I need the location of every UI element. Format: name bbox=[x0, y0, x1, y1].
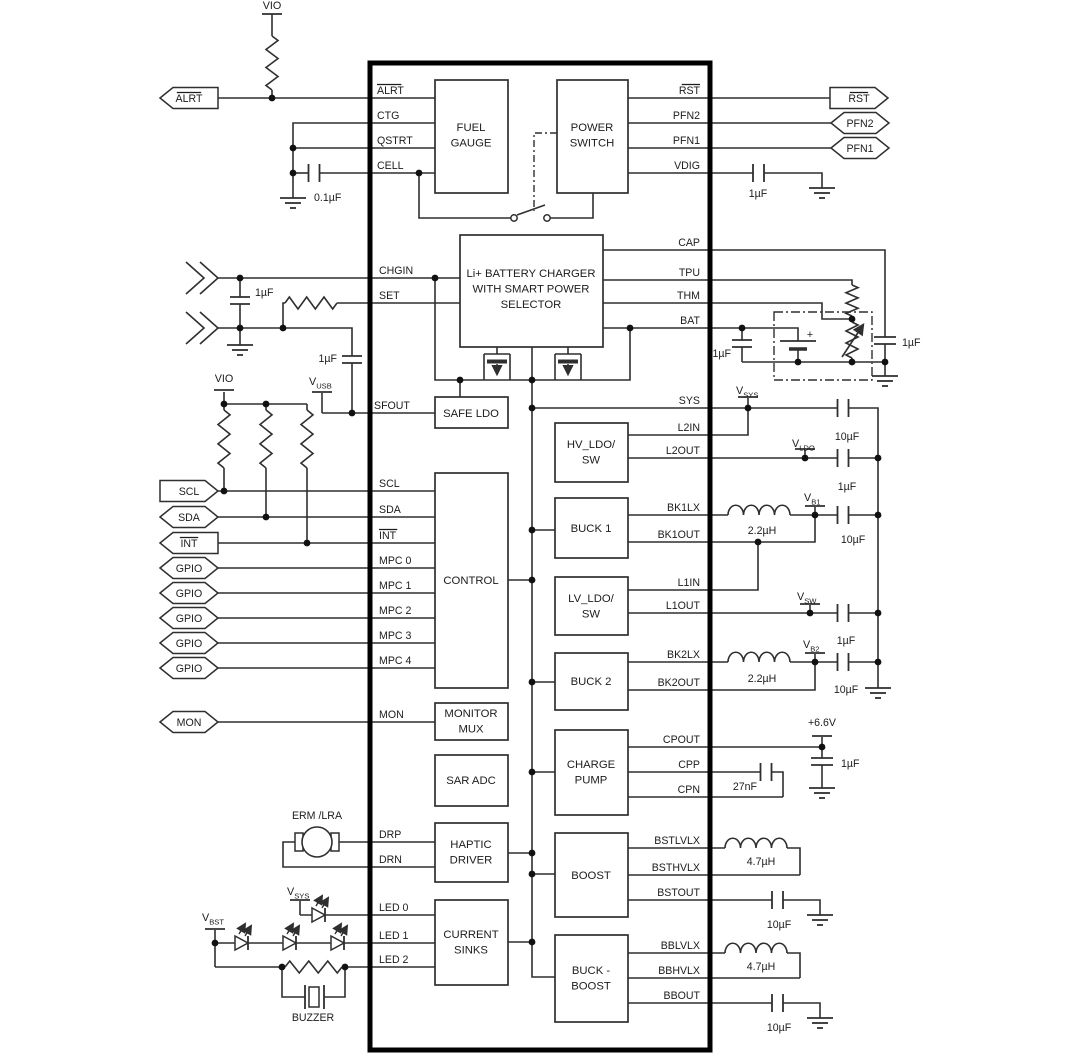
pin-label-mon: MON bbox=[379, 709, 404, 721]
value-label: 2.2µH bbox=[748, 673, 776, 685]
value-label: 2.2µH bbox=[748, 525, 776, 537]
battery-pack-outline bbox=[774, 312, 872, 380]
block-power-switch bbox=[557, 80, 628, 193]
wire bbox=[628, 515, 815, 542]
net-label-vbst: VBST bbox=[202, 912, 224, 927]
pin-label-mpc3: MPC 3 bbox=[379, 630, 411, 642]
connector-label-gpio-4: GPIO bbox=[176, 663, 203, 675]
junction-dot bbox=[237, 325, 244, 332]
input-chevron-icon bbox=[186, 312, 204, 344]
block-label-power-switch: POWER bbox=[571, 122, 614, 134]
block-current-sinks bbox=[435, 900, 508, 985]
junction-dot bbox=[529, 679, 536, 686]
net-label-vio-pullup: VIO bbox=[215, 373, 234, 385]
junction-dot bbox=[875, 610, 882, 617]
pin-label-scl: SCL bbox=[379, 478, 400, 490]
pin-label-led2: LED 2 bbox=[379, 954, 409, 966]
ic-outline bbox=[370, 63, 710, 1050]
wire bbox=[628, 662, 815, 690]
connector-label-gpio-1: GPIO bbox=[176, 588, 203, 600]
junction-dot bbox=[529, 577, 536, 584]
value-label: 1µF bbox=[255, 287, 274, 299]
pin-label-cell: CELL bbox=[377, 160, 404, 172]
connector-label-gpio-2: GPIO bbox=[176, 613, 203, 625]
led-symbol bbox=[283, 936, 296, 950]
pin-label-l1out: L1OUT bbox=[666, 600, 701, 612]
wire bbox=[283, 303, 285, 328]
pin-label-l2in: L2IN bbox=[678, 422, 700, 434]
block-label-monitor-mux: MUX bbox=[458, 724, 484, 736]
junction-dot bbox=[875, 659, 882, 666]
junction-dot bbox=[304, 540, 311, 547]
pin-label-alrt: ALRT bbox=[377, 85, 404, 97]
block-label-current-sinks: CURRENT bbox=[443, 929, 498, 941]
junction-dot bbox=[290, 170, 297, 177]
pin-label-cpp: CPP bbox=[678, 759, 700, 771]
junction-dot bbox=[529, 527, 536, 534]
block-label-battery-charger: SELECTOR bbox=[501, 299, 562, 311]
wires-layer bbox=[215, 14, 885, 1018]
connector-label-mon: MON bbox=[177, 717, 202, 729]
led-emission-arrow bbox=[322, 898, 328, 908]
led-symbol bbox=[331, 936, 344, 950]
pin-label-ctg: CTG bbox=[377, 110, 399, 122]
junction-dot bbox=[416, 170, 423, 177]
block-label-buck-boost: BUCK - bbox=[572, 965, 611, 977]
value-label: 1µF bbox=[837, 635, 856, 647]
connector-label-scl: SCL bbox=[179, 486, 200, 498]
block-label-safe-ldo: SAFE LDO bbox=[443, 408, 499, 420]
wire bbox=[783, 900, 820, 915]
pin-label-bbout: BBOUT bbox=[664, 990, 701, 1002]
inductor bbox=[725, 943, 787, 953]
wire bbox=[603, 280, 852, 285]
led-symbol bbox=[312, 908, 325, 922]
junction-dot bbox=[739, 325, 746, 332]
pin-label-sfout: SFOUT bbox=[374, 400, 410, 412]
wire bbox=[783, 1003, 820, 1018]
value-label: +6.6V bbox=[808, 717, 837, 729]
block-label-current-sinks: SINKS bbox=[454, 945, 488, 957]
value-label: 10µF bbox=[841, 534, 866, 546]
resistor bbox=[285, 961, 342, 973]
junction-dot bbox=[819, 744, 826, 751]
block-label-power-switch: SWITCH bbox=[570, 138, 615, 150]
net-label-vb1: VB1 bbox=[804, 492, 821, 507]
inductor bbox=[728, 652, 790, 662]
junction-dot bbox=[529, 769, 536, 776]
junction-dot bbox=[432, 275, 439, 282]
pin-label-int: INT bbox=[379, 530, 397, 542]
pin-label-mpc2: MPC 2 bbox=[379, 605, 411, 617]
junction-dot bbox=[221, 488, 228, 495]
pin-label-mpc1: MPC 1 bbox=[379, 580, 411, 592]
connector-label-sda: SDA bbox=[178, 512, 201, 524]
pin-label-sys: SYS bbox=[679, 395, 700, 407]
value-label: 1µF bbox=[838, 481, 857, 493]
block-label-buck-boost: BOOST bbox=[571, 981, 611, 993]
value-label: ERM /LRA bbox=[292, 810, 343, 822]
junction-dot bbox=[290, 145, 297, 152]
pin-label-thm: THM bbox=[677, 290, 700, 302]
junction-dot bbox=[279, 964, 286, 971]
pin-label-cpn: CPN bbox=[678, 784, 700, 796]
connector-label-gpio-3: GPIO bbox=[176, 638, 203, 650]
junction-dot bbox=[812, 659, 819, 666]
value-label: BUZZER bbox=[292, 1012, 335, 1024]
resistor bbox=[266, 36, 278, 90]
switch-contact bbox=[511, 215, 517, 221]
junction-dot bbox=[875, 512, 882, 519]
junction-dot bbox=[280, 325, 287, 332]
junction-dot bbox=[212, 940, 219, 947]
junction-dot bbox=[221, 401, 228, 408]
junction-dot bbox=[802, 455, 809, 462]
block-fuel-gauge bbox=[435, 80, 508, 193]
pin-label-drn: DRN bbox=[379, 854, 402, 866]
value-label: 1µF bbox=[902, 337, 921, 349]
value-label: 1µF bbox=[841, 758, 860, 770]
input-chevron-icon bbox=[200, 262, 218, 294]
inductor bbox=[728, 505, 790, 515]
led-emission-arrow bbox=[239, 924, 245, 934]
junction-dot bbox=[812, 512, 819, 519]
led-emission-arrow bbox=[245, 926, 251, 936]
block-lv-ldo-sw bbox=[555, 577, 628, 635]
junction-dot bbox=[237, 275, 244, 282]
block-label-haptic-driver: DRIVER bbox=[450, 855, 493, 867]
block-label-lv-ldo-sw: SW bbox=[582, 609, 601, 621]
pin-label-led1: LED 1 bbox=[379, 930, 409, 942]
block-label-battery-charger: Li+ BATTERY CHARGER bbox=[466, 268, 595, 280]
block-label-buck1: BUCK 1 bbox=[571, 523, 612, 535]
pin-label-qstrt: QSTRT bbox=[377, 135, 413, 147]
block-label-sar-adc: SAR ADC bbox=[446, 775, 496, 787]
junction-dot bbox=[349, 410, 356, 417]
pin-label-rst: RST bbox=[679, 85, 701, 97]
wire bbox=[218, 328, 352, 356]
resistor bbox=[285, 297, 337, 309]
block-label-haptic-driver: HAPTIC bbox=[450, 839, 491, 851]
block-label-fuel-gauge: GAUGE bbox=[451, 138, 492, 150]
wire bbox=[532, 380, 555, 977]
junction-dot bbox=[875, 455, 882, 462]
value-label: 27nF bbox=[733, 781, 758, 793]
pin-label-bk2lx: BK2LX bbox=[667, 649, 700, 661]
block-label-lv-ldo-sw: LV_LDO/ bbox=[568, 593, 614, 605]
pin-label-bk1lx: BK1LX bbox=[667, 502, 700, 514]
block-label-monitor-mux: MONITOR bbox=[444, 708, 497, 720]
value-label: 0.1µF bbox=[314, 192, 342, 204]
junction-dot bbox=[849, 359, 856, 366]
motor-symbol bbox=[302, 827, 332, 857]
thermistor bbox=[846, 322, 858, 358]
pin-label-drp: DRP bbox=[379, 829, 401, 841]
wire bbox=[771, 772, 783, 797]
pin-label-mpc4: MPC 4 bbox=[379, 655, 411, 667]
pin-label-bk2out: BK2OUT bbox=[658, 677, 701, 689]
connector-label-pfn2: PFN2 bbox=[846, 118, 873, 130]
block-label-buck2: BUCK 2 bbox=[571, 676, 612, 688]
junction-dot bbox=[263, 514, 270, 521]
pin-label-bbhvlx: BBHVLX bbox=[658, 965, 700, 977]
junction-dot bbox=[263, 401, 270, 408]
value-label: 1µF bbox=[713, 348, 732, 360]
value-label: + bbox=[807, 329, 813, 341]
net-label-vio-top: VIO bbox=[263, 0, 282, 12]
junction-dot bbox=[529, 850, 536, 857]
junction-dot bbox=[807, 610, 814, 617]
value-label: 10µF bbox=[835, 431, 860, 443]
value-label: 10µF bbox=[767, 1022, 792, 1034]
wire bbox=[293, 123, 435, 198]
pin-label-tpu: TPU bbox=[679, 267, 700, 279]
pin-label-bstlvlx: BSTLVLX bbox=[654, 835, 700, 847]
block-haptic-driver bbox=[435, 823, 508, 882]
led-emission-arrow bbox=[316, 896, 322, 906]
pin-label-mpc0: MPC 0 bbox=[379, 555, 411, 567]
buzzer-crystal bbox=[309, 987, 319, 1007]
pin-label-l1in: L1IN bbox=[678, 577, 700, 589]
wire bbox=[282, 967, 305, 997]
junction-dot bbox=[882, 359, 889, 366]
pin-label-bk1out: BK1OUT bbox=[658, 529, 701, 541]
block-buck-boost bbox=[555, 935, 628, 1022]
switch-blade bbox=[517, 205, 545, 215]
wire bbox=[787, 953, 800, 978]
pin-label-chgin: CHGIN bbox=[379, 265, 413, 277]
net-label-vusb: VUSB bbox=[309, 376, 332, 391]
pin-label-set: SET bbox=[379, 290, 400, 302]
net-label-vldo: VLDO bbox=[792, 438, 815, 453]
pin-label-bblvlx: BBLVLX bbox=[661, 940, 700, 952]
value-label: 1µF bbox=[319, 353, 338, 365]
pin-label-sda: SDA bbox=[379, 504, 402, 516]
net-label-vsys-led: VSYS bbox=[287, 886, 309, 901]
junction-dot bbox=[529, 405, 536, 412]
connector-label-gpio-0: GPIO bbox=[176, 563, 203, 575]
block-label-boost: BOOST bbox=[571, 870, 611, 882]
led-emission-arrow bbox=[335, 924, 341, 934]
junction-dot bbox=[627, 325, 634, 332]
input-chevron-icon bbox=[200, 312, 218, 344]
input-chevron-icon bbox=[186, 262, 204, 294]
junction-dot bbox=[849, 316, 856, 323]
resistor bbox=[301, 410, 313, 468]
pin-label-bstout: BSTOUT bbox=[657, 887, 700, 899]
connector-label-pfn1: PFN1 bbox=[846, 143, 873, 155]
block-label-charge-pump: CHARGE bbox=[567, 759, 616, 771]
block-hv-ldo-sw bbox=[555, 423, 628, 482]
pin-label-cpout: CPOUT bbox=[663, 734, 701, 746]
led-emission-arrow bbox=[293, 926, 299, 936]
block-label-hv-ldo-sw: SW bbox=[582, 455, 601, 467]
wire bbox=[324, 967, 345, 997]
junction-dot bbox=[795, 359, 802, 366]
schematic-page: FUELGAUGEPOWERSWITCHLi+ BATTERY CHARGERW… bbox=[0, 0, 1080, 1056]
resistor bbox=[218, 410, 230, 468]
inductor bbox=[725, 838, 787, 848]
wire bbox=[603, 303, 852, 319]
junction-dot bbox=[745, 405, 752, 412]
pin-label-vdig: VDIG bbox=[674, 160, 700, 172]
pin-label-cap: CAP bbox=[678, 237, 700, 249]
block-label-fuel-gauge: FUEL bbox=[457, 122, 486, 134]
value-label: 10µF bbox=[834, 684, 859, 696]
value-label: 4.7µH bbox=[747, 961, 775, 973]
junction-dot bbox=[342, 964, 349, 971]
led-symbol bbox=[235, 936, 248, 950]
wire bbox=[787, 848, 800, 875]
switch-linkage-line bbox=[534, 133, 557, 211]
wire bbox=[603, 250, 885, 337]
pin-label-l2out: L2OUT bbox=[666, 445, 701, 457]
connector-label-alrt: ALRT bbox=[176, 93, 203, 105]
block-label-hv-ldo-sw: HV_LDO/ bbox=[567, 439, 616, 451]
pin-label-pfn1: PFN1 bbox=[673, 135, 700, 147]
connector-label-rst: RST bbox=[848, 93, 870, 105]
switch-contact bbox=[544, 215, 550, 221]
pin-label-bsthvlx: BSTHVLX bbox=[652, 862, 700, 874]
pin-label-pfn2: PFN2 bbox=[673, 110, 700, 122]
ic-outline-layer bbox=[370, 63, 710, 1050]
wire bbox=[550, 193, 593, 218]
wire bbox=[764, 173, 822, 188]
junction-dot bbox=[269, 95, 276, 102]
junction-dot bbox=[529, 939, 536, 946]
junction-dot bbox=[529, 377, 536, 384]
block-charge-pump bbox=[555, 730, 628, 815]
block-label-control: CONTROL bbox=[443, 575, 498, 587]
value-label: 1µF bbox=[749, 188, 768, 200]
value-label: 4.7µH bbox=[747, 856, 775, 868]
connector-label-int: INT bbox=[180, 538, 198, 550]
block-label-battery-charger: WITH SMART POWER bbox=[473, 284, 590, 296]
junction-dot bbox=[755, 539, 762, 546]
junction-dot bbox=[457, 377, 464, 384]
net-label-vb2: VB2 bbox=[803, 639, 820, 654]
pin-label-led0: LED 0 bbox=[379, 902, 409, 914]
led-emission-arrow bbox=[341, 926, 347, 936]
led-emission-arrow bbox=[287, 924, 293, 934]
junction-dot bbox=[529, 871, 536, 878]
value-label: 10µF bbox=[767, 919, 792, 931]
block-label-charge-pump: PUMP bbox=[575, 775, 608, 787]
pin-label-bat: BAT bbox=[680, 315, 700, 327]
resistor bbox=[260, 410, 272, 468]
pmic-application-schematic: FUELGAUGEPOWERSWITCHLi+ BATTERY CHARGERW… bbox=[0, 0, 1080, 1056]
